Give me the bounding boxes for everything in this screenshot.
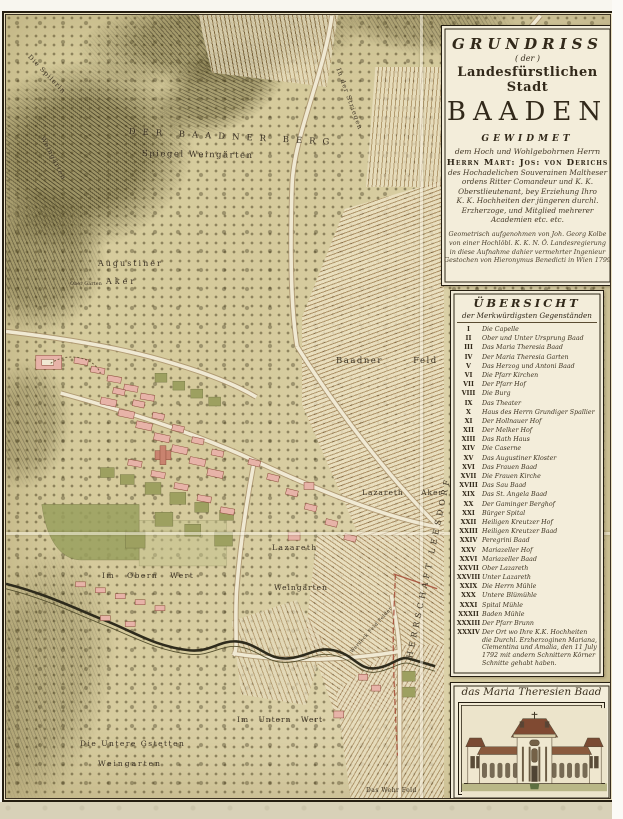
legend-item-numeral: XVI (455, 464, 482, 472)
legend-item-numeral: III (455, 344, 482, 352)
antique-map-sheet: { "cartouche": { "title1": "GRUNDRISS", … (0, 0, 623, 819)
legend-item-name: Der Pfarr Brunn (482, 620, 599, 628)
map-label: Weingarten (98, 759, 162, 768)
legend-item: XXIII Heiligen Kreutzer Baad (455, 528, 599, 536)
legend-item-name: Das Rath Haus (482, 436, 599, 444)
legend-item-numeral: X (455, 409, 482, 417)
map-label: Im Obern Wert (102, 571, 194, 580)
dedication-lines: des Hochadelichen Souverainen Malthesero… (442, 168, 610, 224)
map-title: GRUNDRISS (442, 35, 610, 53)
legend-item: XIX Das St. Angela Baad (455, 491, 599, 499)
legend-item-numeral: XXXII (455, 611, 482, 619)
legend-item-numeral: XVIII (455, 482, 482, 490)
dedication-name: Herrn Mart: Jos: von Derichs (442, 158, 610, 168)
legend-item-name: Der Gaminger Berghof (482, 501, 599, 509)
legend-item: XIII Das Rath Haus (455, 436, 599, 444)
legend-item-name: Untere Blümühle (482, 592, 599, 600)
legend-item-name: Die Capelle (482, 326, 599, 334)
legend-heading: ÜBERSICHT (455, 296, 599, 310)
legend-item-numeral: XXXIV (455, 629, 482, 667)
legend-item-numeral: VII (455, 381, 482, 389)
legend-item: XII Der Melker Hof (455, 427, 599, 435)
legend-item-name: Ober und Unter Ursprung Baad (482, 335, 599, 343)
legend-item: IX Das Theater (455, 400, 599, 408)
legend-item: XVII Die Frauen Kirche (455, 473, 599, 481)
map-surface: DER BAADNER BERGSpiegel WeingärtenDie Sp… (6, 15, 610, 798)
legend-item-numeral: XII (455, 427, 482, 435)
legend-item-name: Die Burg (482, 390, 599, 398)
legend-item-numeral: IV (455, 354, 482, 362)
legend-item-name: Der Hollnauer Hof (482, 418, 599, 426)
legend-item: XXVI Mariazeller Baad (455, 556, 599, 564)
map-label: Die Untere Gstetten (80, 739, 185, 748)
legend-item: XXXIII Der Pfarr Brunn (455, 620, 599, 628)
dedication-intro: dem Hoch und Wohlgebohrnen Herrn (442, 147, 610, 156)
legend-item-name: Mariazeller Baad (482, 556, 599, 564)
legend-item: I Die Capelle (455, 326, 599, 334)
legend-item-name: Das Augustiner Kloster (482, 455, 599, 463)
legend-item-numeral: XXIV (455, 537, 482, 545)
legend-item-numeral: XXXIII (455, 620, 482, 628)
legend-item-name: Ober Lazareth (482, 565, 599, 573)
legend-item-numeral: XX (455, 501, 482, 509)
legend-item-name: Heiligen Kreutzer Hof (482, 519, 599, 527)
legend-item-name: Unter Lazareth (482, 574, 599, 582)
legend-item-numeral: XXIII (455, 528, 482, 536)
legend-item-name: Der Pfarr Hof (482, 381, 599, 389)
legend-item: XXIX Die Herrn Mühle (455, 583, 599, 591)
legend-item: XI Der Hollnauer Hof (455, 418, 599, 426)
legend-item-numeral: XIX (455, 491, 482, 499)
legend-item-numeral: IX (455, 400, 482, 408)
legend-item-name: Die Frauen Kirche (482, 473, 599, 481)
field-stripes (366, 67, 444, 187)
legend-item: X Haus des Herrn Grundiger Spallier (455, 409, 599, 417)
paper-margin-bottom (0, 802, 612, 819)
map-border-frame: DER BAADNER BERGSpiegel WeingärtenDie Sp… (2, 11, 614, 802)
map-city-name: BAADEN (442, 97, 610, 127)
legend-item-name: Das Sau Baad (482, 482, 599, 490)
avenue-arc (51, 357, 101, 373)
legend-item-numeral: XXI (455, 510, 482, 518)
legend-item-numeral: XXII (455, 519, 482, 527)
legend-item: II Ober und Unter Ursprung Baad (455, 335, 599, 343)
attribution-lines: Geometrisch aufgenohmen von Joh. Georg K… (442, 230, 610, 264)
legend-item-name: Der Ort wo Ihre K.K. Hochheiten die Durc… (482, 629, 599, 667)
legend-item-numeral: XXV (455, 547, 482, 555)
legend-item-numeral: XVII (455, 473, 482, 481)
legend-item-name: Das Frauen Baad (482, 464, 599, 472)
legend-item: XXXI Spital Mühle (455, 602, 599, 610)
legend-item: XVI Das Frauen Baad (455, 464, 599, 472)
legend-item-numeral: V (455, 363, 482, 371)
legend-item-name: Das Herzog und Antoni Baad (482, 363, 599, 371)
title-cartouche: GRUNDRISS ( der ) Landesfürstlichen Stad… (441, 25, 610, 286)
legend-item: VII Der Pfarr Hof (455, 381, 599, 389)
legend-item-name: Bürger Spital (482, 510, 599, 518)
legend-item: XXI Bürger Spital (455, 510, 599, 518)
legend-item: XXIV Peregrini Baad (455, 537, 599, 545)
legend-subheading: der Merkwürdigsten Gegenständen (457, 311, 597, 323)
legend-item: IV Der Maria Theresia Garten (455, 354, 599, 362)
paper-margin-right (612, 0, 623, 819)
legend-item-name: Der Melker Hof (482, 427, 599, 435)
legend-item: XXVIII Unter Lazareth (455, 574, 599, 582)
map-subtitle: Landesfürstlichen Stadt (442, 65, 610, 95)
legend-item: XXXII Baden Mühle (455, 611, 599, 619)
legend-item-numeral: XXVII (455, 565, 482, 573)
map-label: Aker (106, 277, 137, 286)
map-label: In der Striegen (334, 67, 364, 131)
hill-shading (6, 531, 141, 798)
hill-shading (6, 354, 80, 495)
legend-item-numeral: I (455, 326, 482, 334)
legend-item-name: Baden Mühle (482, 611, 599, 619)
legend-item-numeral: XI (455, 418, 482, 426)
legend-item: VI Die Pfarr Kirchen (455, 372, 599, 380)
map-label: Augustiner (98, 259, 163, 268)
legend-item-numeral: VI (455, 372, 482, 380)
legend-item: XV Das Augustiner Kloster (455, 455, 599, 463)
legend-item: III Das Maria Theresia Baad (455, 344, 599, 352)
map-label: Im Untern Wert (237, 715, 323, 724)
bath-house-elevation (462, 706, 607, 797)
legend-item-numeral: XIV (455, 445, 482, 453)
legend-item: XXVII Ober Lazareth (455, 565, 599, 573)
legend-item: XVIII Das Sau Baad (455, 482, 599, 490)
dedication-heading: GEWIDMET (442, 134, 610, 144)
legend-item-name: Das St. Angela Baad (482, 491, 599, 499)
legend-item-name: Haus des Herrn Grundiger Spallier (482, 409, 599, 417)
legend-item: XXX Untere Blümühle (455, 592, 599, 600)
legend-item-numeral: XXVIII (455, 574, 482, 582)
legend-item: XXII Heiligen Kreutzer Hof (455, 519, 599, 527)
legend-items: I Die Capelle II Ober und Unter Ursprung… (455, 326, 599, 667)
legend-item-numeral: XXXI (455, 602, 482, 610)
legend-panel: ÜBERSICHT der Merkwürdigsten Gegenstände… (450, 290, 604, 677)
legend-item-numeral: XXVI (455, 556, 482, 564)
map-label: Lazareth (272, 543, 318, 552)
vignette-caption: das Maria Theresien Baad (451, 686, 610, 698)
legend-item-numeral: VIII (455, 390, 482, 398)
legend-item-name: Peregrini Baad (482, 537, 599, 545)
map-title-der: ( der ) (442, 54, 610, 63)
legend-item: V Das Herzog und Antoni Baad (455, 363, 599, 371)
legend-item: VIII Die Burg (455, 390, 599, 398)
legend-item-name: Der Maria Theresia Garten (482, 354, 599, 362)
legend-item-name: Heiligen Kreutzer Baad (482, 528, 599, 536)
legend-item: XIV Die Caserne (455, 445, 599, 453)
legend-item-name: Die Caserne (482, 445, 599, 453)
legend-item-name: Das Maria Theresia Baad (482, 344, 599, 352)
legend-item: XXXIV Der Ort wo Ihre K.K. Hochheiten di… (455, 629, 599, 667)
legend-item-numeral: XIII (455, 436, 482, 444)
legend-item-numeral: II (455, 335, 482, 343)
legend-item-name: Mariazeller Hof (482, 547, 599, 555)
legend-item-name: Die Pfarr Kirchen (482, 372, 599, 380)
legend-item: XXV Mariazeller Hof (455, 547, 599, 555)
legend-item-name: Spital Mühle (482, 602, 599, 610)
vignette-picture-frame (458, 702, 605, 795)
vignette-panel: das Maria Theresien Baad (450, 682, 610, 798)
legend-item-numeral: XV (455, 455, 482, 463)
field-stripes (302, 180, 444, 542)
legend-item-numeral: XXIX (455, 583, 482, 591)
legend-item-numeral: XXX (455, 592, 482, 600)
legend-item: XX Der Gaminger Berghof (455, 501, 599, 509)
legend-item-name: Die Herrn Mühle (482, 583, 599, 591)
legend-item-name: Das Theater (482, 400, 599, 408)
